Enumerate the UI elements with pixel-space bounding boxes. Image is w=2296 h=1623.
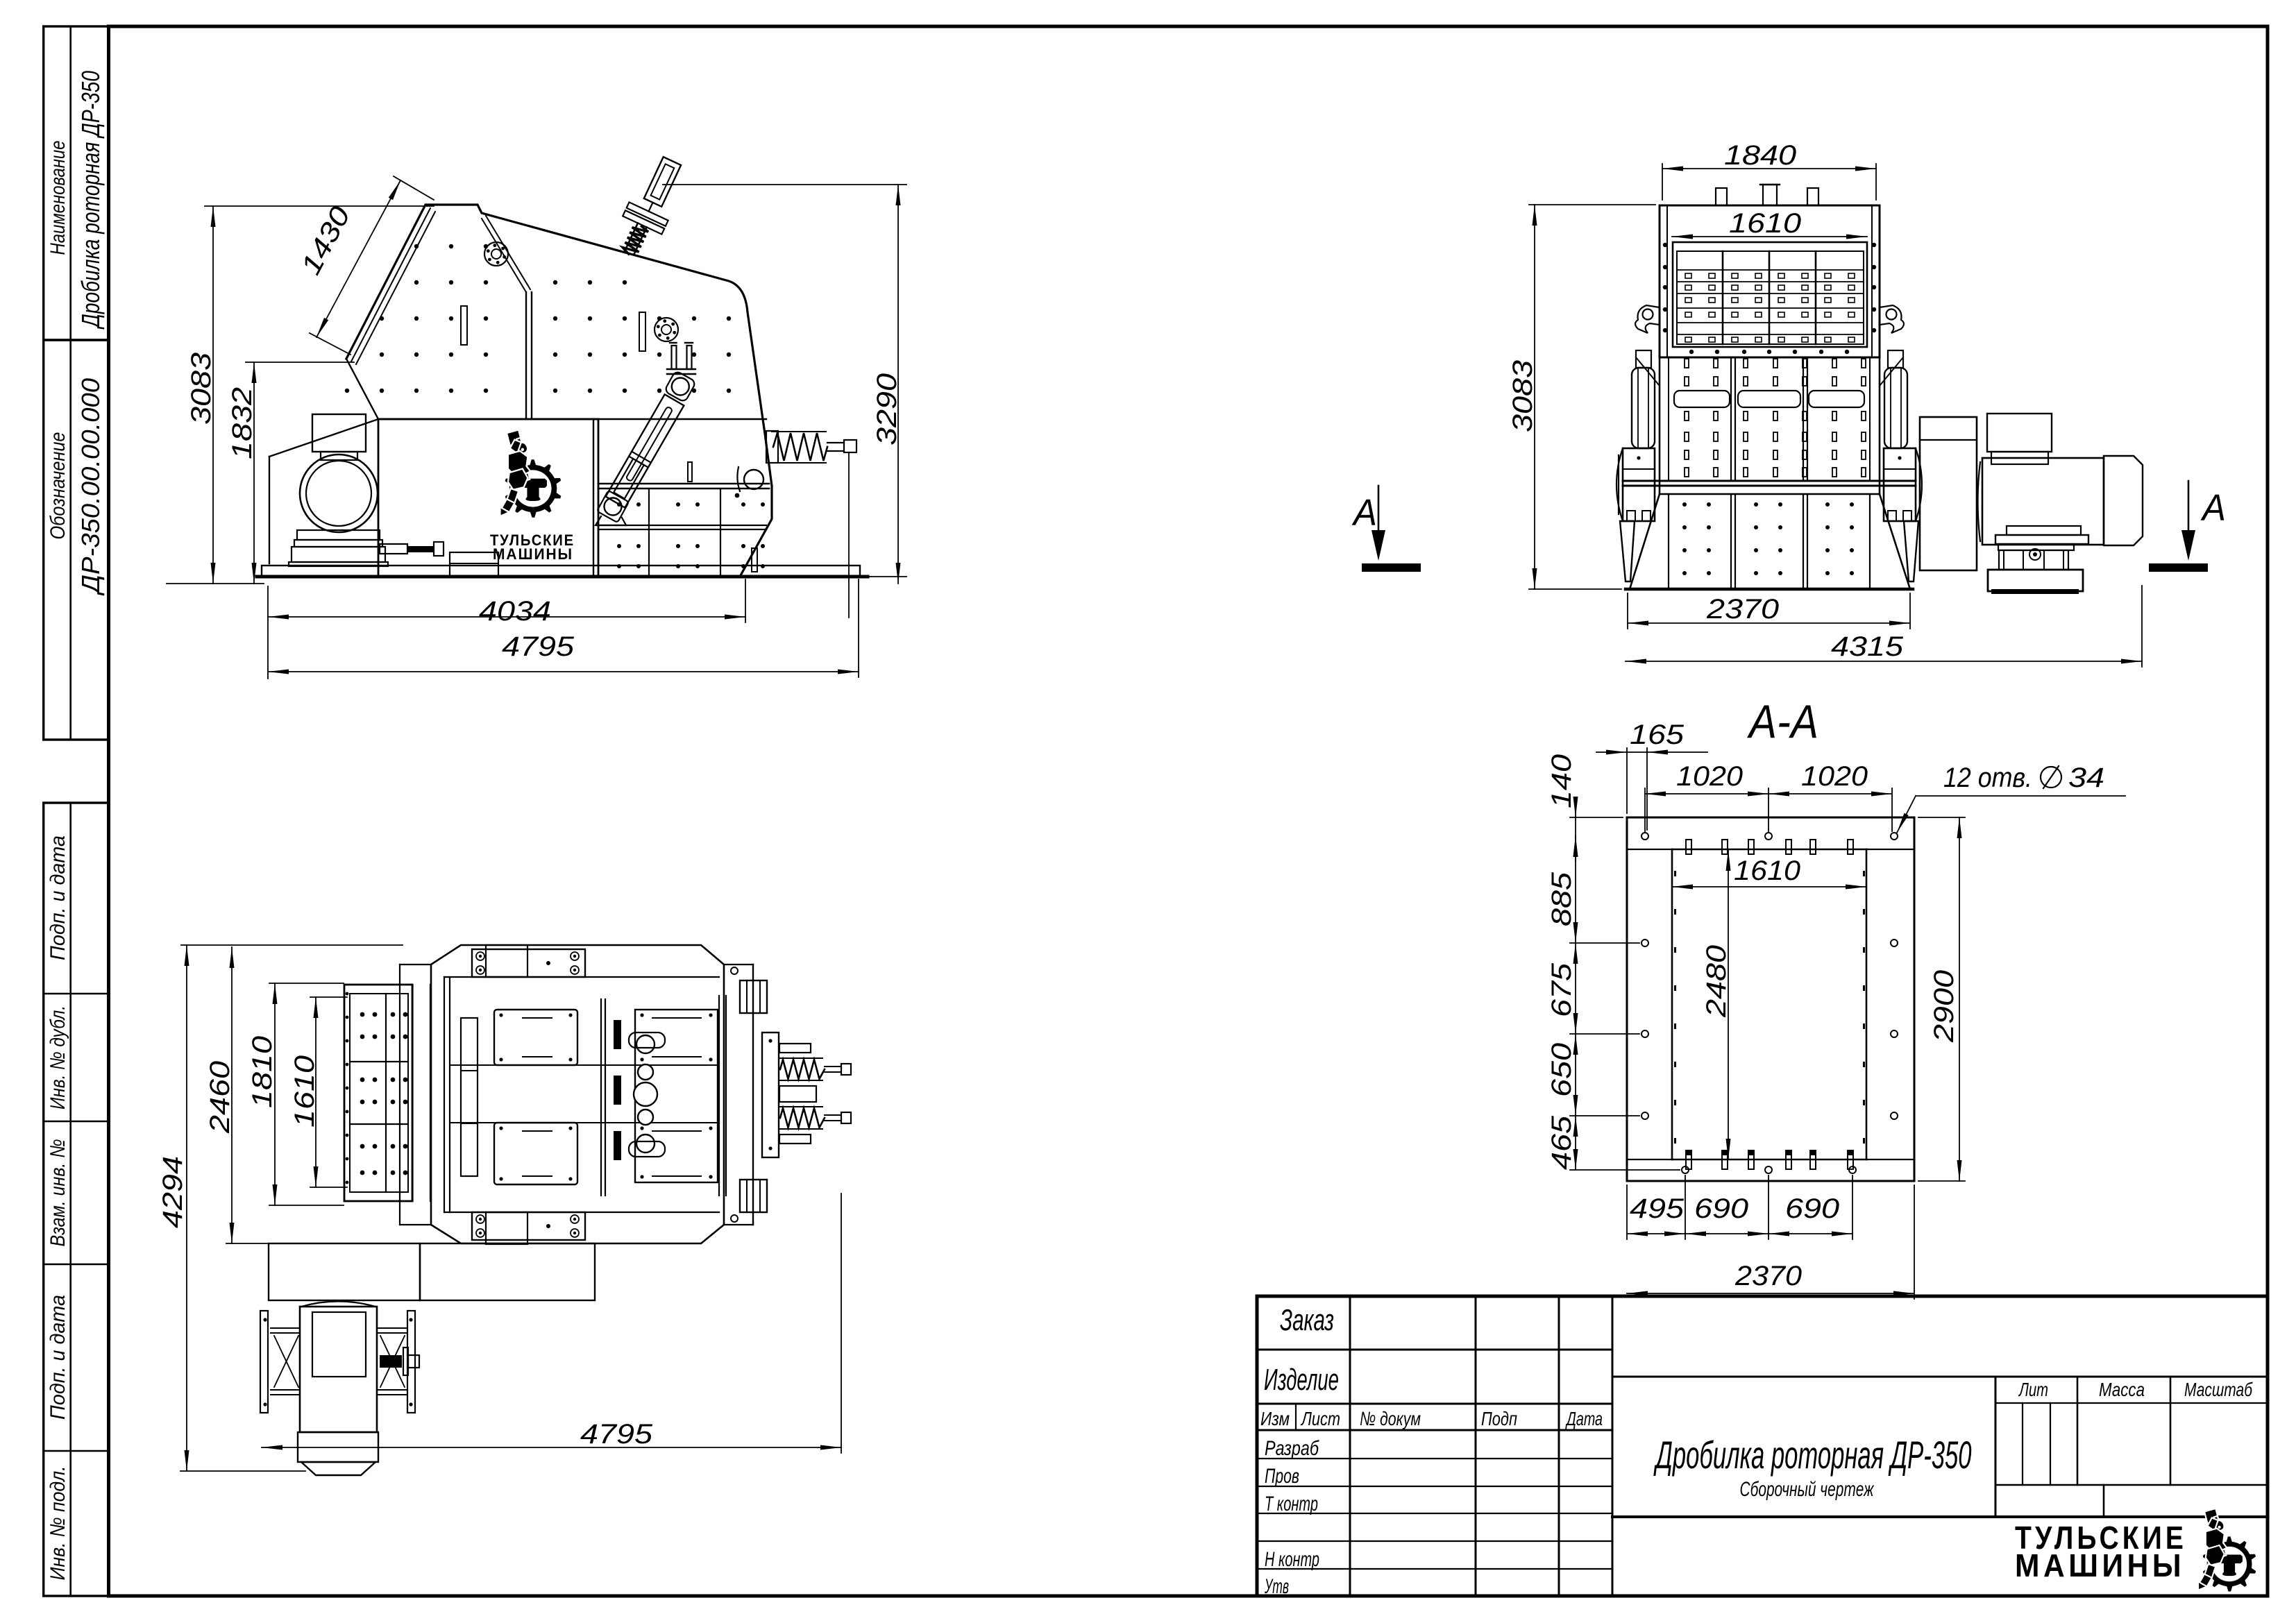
svg-text:Подп: Подп <box>1481 1408 1517 1429</box>
svg-text:1020: 1020 <box>1801 761 1868 792</box>
svg-text:690: 690 <box>1694 1193 1748 1224</box>
svg-text:Т контр: Т контр <box>1265 1493 1318 1515</box>
svg-text:Наименование: Наименование <box>47 141 69 255</box>
svg-text:12 отв.: 12 отв. <box>1943 763 2032 793</box>
svg-text:Дата: Дата <box>1565 1408 1603 1429</box>
svg-text:3083: 3083 <box>1508 360 1538 432</box>
svg-text:885: 885 <box>1546 872 1577 926</box>
svg-text:2460: 2460 <box>205 1061 235 1134</box>
svg-text:690: 690 <box>1785 1193 1839 1224</box>
svg-text:3083: 3083 <box>186 352 217 425</box>
svg-text:А-А: А-А <box>1746 695 1818 748</box>
svg-text:Утв: Утв <box>1264 1575 1289 1598</box>
svg-text:Заказ: Заказ <box>1280 1303 1334 1337</box>
svg-text:Изм: Изм <box>1260 1408 1290 1429</box>
svg-text:3290: 3290 <box>872 373 902 445</box>
svg-text:650: 650 <box>1546 1043 1577 1097</box>
svg-text:1610: 1610 <box>289 1055 320 1128</box>
svg-text:495: 495 <box>1630 1193 1685 1224</box>
svg-text:Разраб: Разраб <box>1265 1437 1319 1460</box>
svg-text:4795: 4795 <box>502 631 575 662</box>
svg-text:1020: 1020 <box>1676 761 1743 792</box>
svg-text:4795: 4795 <box>580 1419 653 1450</box>
svg-text:1610: 1610 <box>1729 208 1801 239</box>
svg-text:Масштаб: Масштаб <box>2184 1379 2253 1400</box>
svg-text:Н контр: Н контр <box>1265 1548 1319 1571</box>
svg-text:Подп. и дата: Подп. и дата <box>47 835 69 960</box>
svg-text:№ докум: № докум <box>1360 1408 1421 1429</box>
svg-text:1832: 1832 <box>227 387 258 459</box>
svg-text:Инв. № подл.: Инв. № подл. <box>47 1466 69 1581</box>
svg-text:Дробилка роторная ДР-350: Дробилка роторная ДР-350 <box>1653 1433 1972 1477</box>
svg-text:465: 465 <box>1546 1115 1577 1170</box>
svg-text:Лит: Лит <box>2018 1379 2048 1400</box>
svg-text:Инв. № дубл.: Инв. № дубл. <box>47 1005 69 1110</box>
svg-text:МАШИНЫ: МАШИНЫ <box>2015 1547 2185 1583</box>
svg-text:Взам. инв. №: Взам. инв. № <box>47 1139 69 1247</box>
svg-text:2480: 2480 <box>1701 945 1732 1018</box>
svg-text:1840: 1840 <box>1724 140 1796 171</box>
svg-text:Подп. и дата: Подп. и дата <box>47 1295 69 1420</box>
svg-text:675: 675 <box>1546 962 1577 1017</box>
svg-text:1610: 1610 <box>1734 856 1800 886</box>
svg-text:ДР-350.00.00.000: ДР-350.00.00.000 <box>76 378 105 596</box>
svg-text:А: А <box>2200 487 2226 529</box>
svg-text:Обозначение: Обозначение <box>47 432 69 540</box>
svg-text:Пров: Пров <box>1265 1465 1299 1488</box>
svg-text:А: А <box>1351 492 1377 534</box>
svg-text:Масса: Масса <box>2099 1379 2145 1400</box>
svg-text:Дробилка роторная ДР-350: Дробилка роторная ДР-350 <box>76 71 105 330</box>
svg-text:МАШИНЫ: МАШИНЫ <box>493 545 573 563</box>
svg-text:140: 140 <box>1546 754 1577 808</box>
svg-text:2370: 2370 <box>1734 1261 1802 1291</box>
svg-text:1810: 1810 <box>247 1036 278 1108</box>
svg-text:2370: 2370 <box>1706 594 1779 624</box>
svg-text:34: 34 <box>2068 763 2104 793</box>
svg-text:4034: 4034 <box>479 596 551 627</box>
svg-text:Лист: Лист <box>1300 1408 1340 1429</box>
svg-text:Изделие: Изделие <box>1264 1363 1339 1397</box>
svg-text:Сборочный чертеж: Сборочный чертеж <box>1740 1478 1875 1501</box>
svg-text:4315: 4315 <box>1831 631 1904 662</box>
svg-text:165: 165 <box>1630 720 1685 750</box>
svg-text:4294: 4294 <box>158 1156 188 1228</box>
svg-text:2900: 2900 <box>1929 970 1959 1043</box>
